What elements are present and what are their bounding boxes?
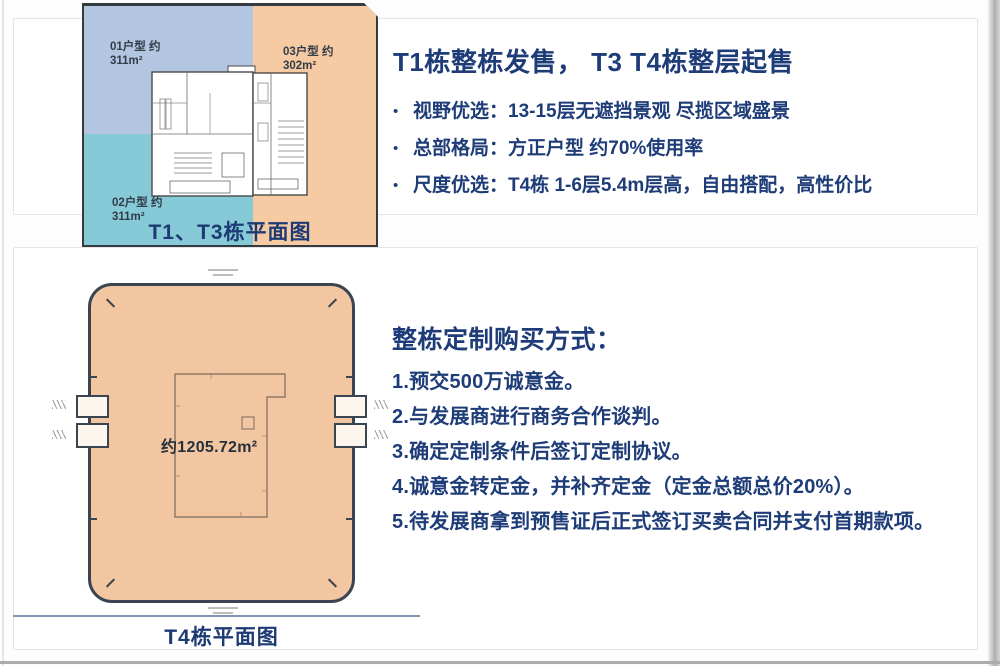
- bullet-item: • 总部格局：方正户型 约70%使用率: [393, 138, 978, 160]
- bullet-dot-icon: •: [393, 138, 413, 160]
- t4-core-notch: [334, 395, 367, 418]
- purchase-step: 4.诚意金转定金，并补齐定金（定金总额总价20%）。: [392, 477, 982, 498]
- edge-tick-icon: [346, 376, 354, 378]
- bullet-item: • 尺度优选：T4栋 1-6层5.4m层高，自由搭配，高性价比: [393, 175, 978, 197]
- hatch-mark-icon: [52, 400, 66, 409]
- t4-core-notch: [76, 423, 109, 448]
- unit-03-name: 03户型 约: [283, 45, 334, 59]
- purchase-heading: 整栋定制购买方式：: [392, 320, 982, 356]
- t4-floorplan: 约1205.72m²: [88, 283, 355, 603]
- t1-t3-floorplan: 01户型 约 311m² 03户型 约 302m² 02户型 约 311m² T…: [82, 3, 378, 247]
- purchase-step: 5.待发展商拿到预售证后正式签订买卖合同并支付首期款项。: [392, 512, 982, 533]
- t1-t3-plan-caption: T1、T3栋平面图: [82, 216, 378, 246]
- edge-tick-icon: [89, 376, 97, 378]
- bullet-dot-icon: •: [393, 175, 413, 197]
- bullet-text: 总部格局：方正户型 约70%使用率: [413, 138, 703, 160]
- edge-tick-icon: [346, 518, 354, 520]
- hatch-mark-icon: [374, 400, 388, 409]
- t4-core-notch: [334, 423, 367, 448]
- unit-02-name: 02户型 约: [112, 196, 163, 210]
- hatch-mark-icon: [52, 430, 66, 439]
- t4-area-label: 约1205.72m²: [161, 433, 257, 457]
- bullet-dot-icon: •: [393, 101, 413, 123]
- unit-03-area: 302m²: [283, 59, 334, 73]
- sales-bullets: • 视野优选：13-15层无遮挡景观 尽揽区域盛景 • 总部格局：方正户型 约7…: [393, 101, 978, 197]
- edge-tick-icon: [89, 518, 97, 520]
- dimension-mark: [208, 607, 238, 609]
- purchase-step: 1.预交500万诚意金。: [392, 372, 982, 393]
- bullet-item: • 视野优选：13-15层无遮挡景观 尽揽区域盛景: [393, 101, 978, 123]
- left-edge-line: [2, 0, 4, 666]
- bottom-edge-line: [0, 661, 1000, 664]
- sales-info-block: T1栋整栋发售， T3 T4栋整层起售 • 视野优选：13-15层无遮挡景观 尽…: [393, 42, 978, 212]
- dimension-mark: [213, 612, 233, 614]
- unit-01-name: 01户型 约: [110, 40, 161, 54]
- slide: 01户型 约 311m² 03户型 约 302m² 02户型 约 311m² T…: [0, 0, 1000, 666]
- plan-caption-divider: [13, 615, 420, 617]
- sales-title: T1栋整栋发售， T3 T4栋整层起售: [393, 42, 978, 79]
- t4-plan-caption: T4栋平面图: [88, 621, 355, 651]
- hatch-mark-icon: [374, 430, 388, 439]
- scrollbar-strip[interactable]: [988, 0, 1000, 666]
- purchase-step: 2.与发展商进行商务合作谈判。: [392, 407, 982, 428]
- purchase-steps: 1.预交500万诚意金。 2.与发展商进行商务合作谈判。 3.确定定制条件后签订…: [392, 372, 982, 533]
- purchase-info-block: 整栋定制购买方式： 1.预交500万诚意金。 2.与发展商进行商务合作谈判。 3…: [392, 320, 982, 547]
- dimension-mark: [213, 274, 233, 276]
- dimension-mark: [208, 269, 238, 271]
- unit-03-label: 03户型 约 302m²: [283, 45, 334, 73]
- unit-01-label: 01户型 约 311m²: [110, 40, 161, 68]
- bullet-text: 视野优选：13-15层无遮挡景观 尽揽区域盛景: [413, 101, 790, 123]
- unit-01-area: 311m²: [110, 54, 161, 68]
- purchase-step: 3.确定定制条件后签订定制协议。: [392, 442, 982, 463]
- t4-core-notch: [76, 395, 109, 418]
- bullet-text: 尺度优选：T4栋 1-6层5.4m层高，自由搭配，高性价比: [413, 175, 872, 197]
